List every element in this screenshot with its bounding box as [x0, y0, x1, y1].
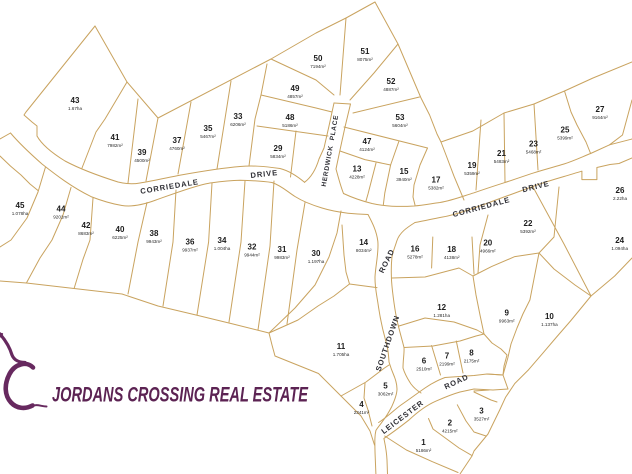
svg-text:25: 25 — [561, 126, 570, 135]
svg-text:47: 47 — [363, 137, 372, 146]
svg-text:JORDANS CROSSING REAL ESTATE: JORDANS CROSSING REAL ESTATE — [52, 384, 309, 407]
svg-text:38: 38 — [150, 229, 159, 238]
svg-text:29: 29 — [274, 144, 283, 153]
svg-text:8683m²: 8683m² — [78, 231, 94, 236]
svg-text:5467m²: 5467m² — [200, 134, 216, 139]
svg-text:31: 31 — [278, 245, 287, 254]
svg-text:35: 35 — [204, 124, 213, 133]
svg-text:30: 30 — [312, 249, 321, 258]
svg-text:34: 34 — [218, 236, 227, 245]
svg-text:1.078ha: 1.078ha — [12, 211, 29, 216]
svg-text:5: 5 — [383, 382, 388, 391]
svg-text:23: 23 — [529, 140, 538, 149]
svg-text:4500m²: 4500m² — [134, 158, 150, 163]
svg-text:9164m²: 9164m² — [592, 115, 608, 120]
svg-text:37: 37 — [173, 136, 182, 145]
svg-text:5483m²: 5483m² — [494, 159, 510, 164]
svg-text:1.094ha: 1.094ha — [611, 246, 628, 251]
svg-text:13: 13 — [353, 165, 362, 174]
svg-text:5392m²: 5392m² — [520, 229, 536, 234]
svg-text:10: 10 — [545, 312, 554, 321]
svg-text:1: 1 — [421, 438, 426, 447]
svg-text:24: 24 — [615, 236, 624, 245]
svg-text:51: 51 — [361, 47, 370, 56]
svg-text:7194m²: 7194m² — [310, 64, 326, 69]
svg-text:41: 41 — [111, 133, 120, 142]
svg-text:1.705ha: 1.705ha — [333, 352, 350, 357]
svg-text:45: 45 — [16, 201, 25, 210]
svg-text:5604m²: 5604m² — [392, 123, 408, 128]
svg-text:9983m²: 9983m² — [274, 255, 290, 260]
svg-text:4138m²: 4138m² — [444, 255, 460, 260]
svg-text:52: 52 — [387, 77, 396, 86]
svg-text:18: 18 — [447, 245, 456, 254]
svg-text:3527m²: 3527m² — [474, 417, 490, 422]
svg-text:7: 7 — [445, 352, 450, 361]
svg-text:5186m²: 5186m² — [282, 123, 298, 128]
svg-text:50: 50 — [314, 54, 323, 63]
svg-text:5834m²: 5834m² — [270, 154, 286, 159]
svg-text:40: 40 — [116, 225, 125, 234]
svg-text:16: 16 — [411, 245, 420, 254]
svg-text:4966m²: 4966m² — [480, 249, 496, 254]
svg-text:5468m²: 5468m² — [526, 150, 542, 155]
svg-text:39: 39 — [138, 148, 147, 157]
svg-text:8034m²: 8034m² — [356, 248, 372, 253]
svg-text:44: 44 — [57, 205, 66, 214]
svg-text:5382m²: 5382m² — [428, 186, 444, 191]
svg-text:2.22ha: 2.22ha — [613, 196, 627, 201]
svg-text:8: 8 — [469, 349, 474, 358]
svg-text:2199m²: 2199m² — [439, 362, 455, 367]
svg-text:43: 43 — [71, 96, 80, 105]
svg-text:42: 42 — [82, 221, 91, 230]
svg-text:2175m²: 2175m² — [464, 359, 480, 364]
svg-text:49: 49 — [291, 84, 300, 93]
svg-text:6206m²: 6206m² — [230, 122, 246, 127]
svg-text:5278m²: 5278m² — [407, 255, 423, 260]
svg-text:2510m²: 2510m² — [416, 367, 432, 372]
svg-text:1.137ha: 1.137ha — [541, 322, 558, 327]
svg-text:4215m²: 4215m² — [442, 429, 458, 434]
svg-text:7982m²: 7982m² — [107, 143, 123, 148]
svg-text:14: 14 — [359, 238, 368, 247]
svg-text:5359m²: 5359m² — [464, 171, 480, 176]
svg-text:2: 2 — [448, 419, 453, 428]
svg-text:9963m²: 9963m² — [499, 319, 515, 324]
svg-text:9: 9 — [504, 309, 509, 318]
svg-text:4124m²: 4124m² — [359, 147, 375, 152]
svg-text:53: 53 — [396, 113, 405, 122]
svg-text:12: 12 — [437, 303, 446, 312]
svg-text:4857m²: 4857m² — [287, 94, 303, 99]
svg-text:1.281ha: 1.281ha — [433, 313, 450, 318]
svg-text:26: 26 — [616, 186, 625, 195]
svg-text:9937m²: 9937m² — [182, 248, 198, 253]
svg-text:4887m²: 4887m² — [383, 87, 399, 92]
svg-text:19: 19 — [468, 161, 477, 170]
svg-text:32: 32 — [248, 243, 257, 252]
svg-text:4760m²: 4760m² — [169, 146, 185, 151]
svg-text:9944m²: 9944m² — [244, 253, 260, 258]
svg-text:22: 22 — [524, 219, 533, 228]
svg-text:48: 48 — [286, 113, 295, 122]
svg-text:33: 33 — [234, 112, 243, 121]
svg-text:6: 6 — [422, 357, 427, 366]
svg-text:6225m²: 6225m² — [112, 235, 128, 240]
svg-text:17: 17 — [432, 176, 441, 185]
svg-text:3062m²: 3062m² — [378, 392, 394, 397]
svg-text:1.67ha: 1.67ha — [68, 106, 82, 111]
svg-text:3940m²: 3940m² — [396, 177, 412, 182]
svg-text:1.004ha: 1.004ha — [214, 246, 231, 251]
svg-text:5399m²: 5399m² — [557, 136, 573, 141]
svg-text:27: 27 — [596, 105, 605, 114]
svg-text:9943m²: 9943m² — [146, 239, 162, 244]
svg-text:20: 20 — [483, 239, 492, 248]
svg-text:9201m²: 9201m² — [53, 215, 69, 220]
svg-text:4: 4 — [359, 400, 364, 409]
svg-text:3: 3 — [479, 407, 484, 416]
svg-text:4228m²: 4228m² — [349, 175, 365, 180]
svg-text:1.197ha: 1.197ha — [308, 259, 325, 264]
svg-text:15: 15 — [400, 167, 409, 176]
svg-text:5186m²: 5186m² — [416, 448, 432, 453]
svg-text:2341m²: 2341m² — [354, 410, 370, 415]
svg-text:36: 36 — [186, 238, 195, 247]
svg-text:8075m²: 8075m² — [357, 57, 373, 62]
svg-text:21: 21 — [497, 149, 506, 158]
svg-text:11: 11 — [337, 342, 346, 351]
